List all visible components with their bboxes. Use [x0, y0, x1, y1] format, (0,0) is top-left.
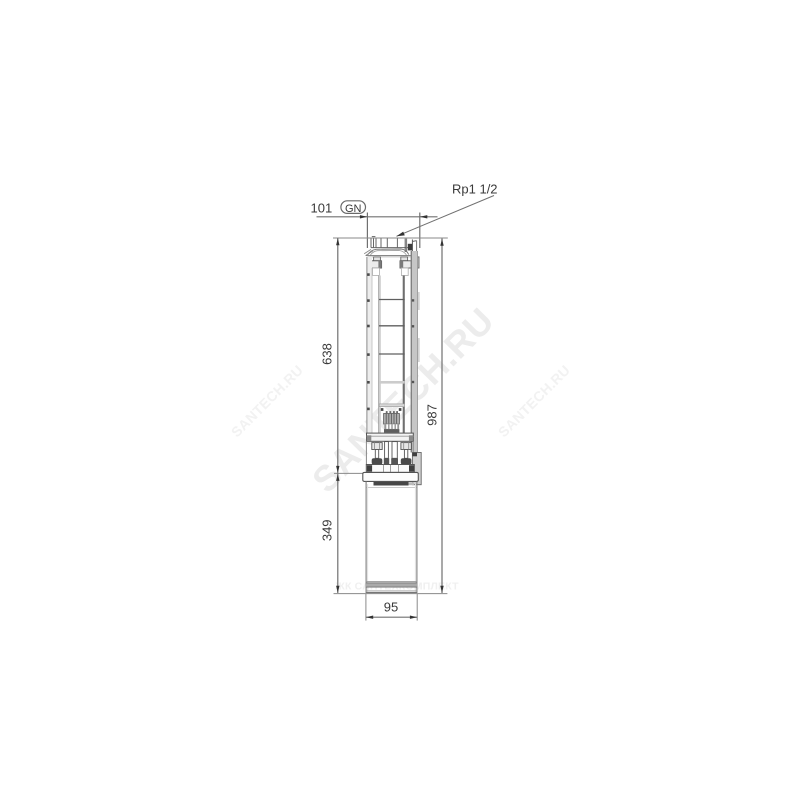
- svg-text:Rp1 1/2: Rp1 1/2: [452, 182, 498, 197]
- svg-text:101: 101: [311, 201, 333, 216]
- svg-text:95: 95: [384, 600, 398, 615]
- svg-text:987: 987: [425, 404, 440, 426]
- svg-text:638: 638: [320, 343, 335, 365]
- svg-text:GN: GN: [345, 203, 362, 215]
- svg-text:349: 349: [320, 519, 335, 541]
